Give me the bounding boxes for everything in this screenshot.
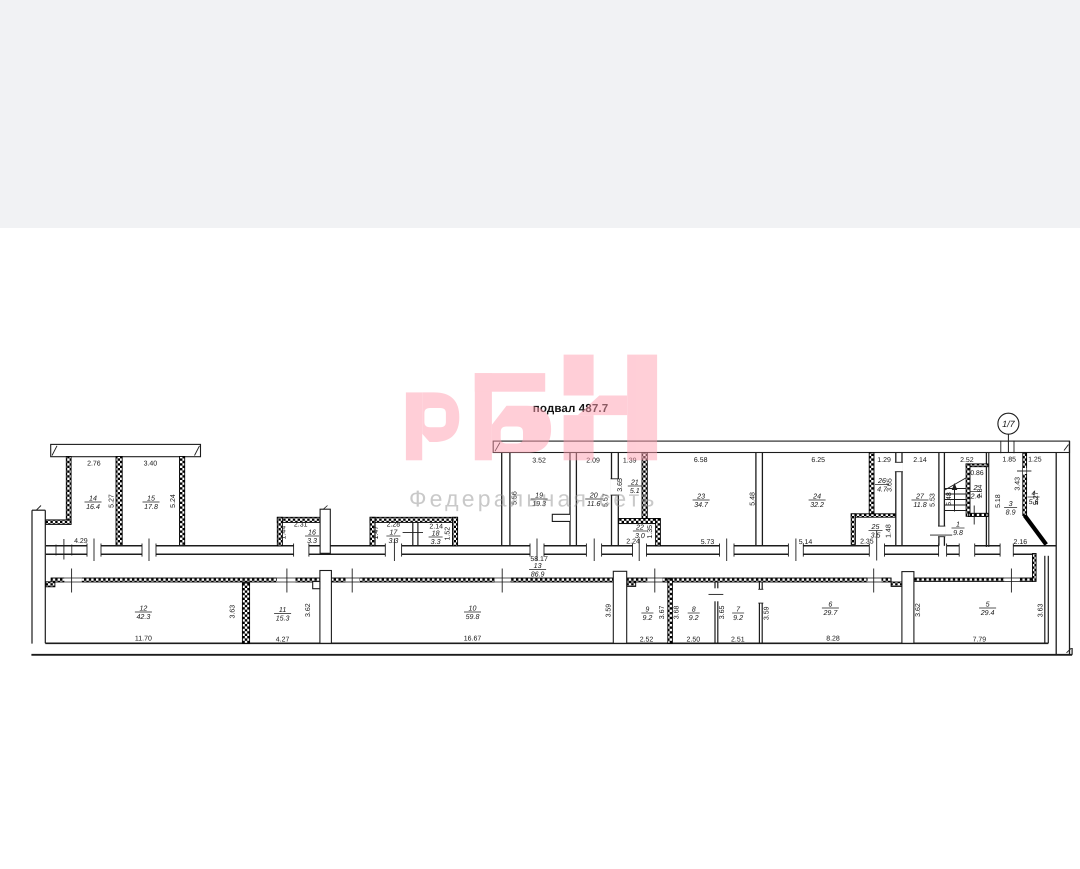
svg-text:29.4: 29.4	[980, 609, 995, 617]
svg-text:1.48: 1.48	[885, 524, 892, 538]
svg-text:5.14: 5.14	[799, 539, 813, 546]
svg-text:3.59: 3.59	[605, 604, 612, 618]
svg-text:6.25: 6.25	[811, 457, 825, 464]
svg-text:2.14: 2.14	[429, 524, 443, 531]
svg-text:16.4: 16.4	[86, 503, 100, 511]
svg-text:2.24: 2.24	[626, 539, 640, 546]
svg-text:3.62: 3.62	[915, 603, 922, 617]
svg-text:9.2: 9.2	[642, 614, 652, 622]
svg-text:3.65: 3.65	[719, 605, 726, 619]
svg-text:5.48: 5.48	[946, 492, 953, 506]
svg-text:5.48: 5.48	[749, 492, 756, 506]
svg-text:Федеральная сеть: Федеральная сеть	[409, 486, 658, 512]
svg-text:1.29: 1.29	[877, 457, 891, 464]
svg-text:3.3: 3.3	[307, 537, 317, 545]
svg-text:2.51: 2.51	[731, 636, 745, 643]
svg-text:16: 16	[308, 528, 316, 536]
svg-text:2.84: 2.84	[977, 484, 984, 497]
svg-text:11: 11	[279, 606, 286, 614]
svg-text:2.50: 2.50	[686, 636, 700, 643]
svg-text:17: 17	[389, 528, 398, 536]
svg-text:3.3: 3.3	[431, 538, 441, 546]
svg-text:29.7: 29.7	[822, 609, 838, 617]
svg-text:8.28: 8.28	[826, 636, 840, 643]
svg-text:26: 26	[877, 477, 886, 485]
svg-text:1: 1	[956, 520, 960, 528]
svg-text:5: 5	[986, 600, 990, 608]
svg-text:3.62: 3.62	[305, 603, 312, 617]
svg-text:3.65: 3.65	[887, 478, 894, 492]
svg-text:10: 10	[469, 604, 477, 612]
svg-text:3.43: 3.43	[1015, 477, 1022, 491]
svg-text:3: 3	[1009, 500, 1013, 508]
svg-text:3.68: 3.68	[674, 605, 681, 619]
svg-text:11.8: 11.8	[913, 501, 926, 509]
svg-text:18: 18	[432, 529, 440, 537]
svg-text:1.35: 1.35	[647, 525, 654, 539]
svg-text:17.8: 17.8	[144, 503, 158, 511]
svg-text:2.52: 2.52	[640, 636, 654, 643]
svg-text:3.3: 3.3	[388, 537, 398, 545]
svg-text:9.2: 9.2	[689, 614, 699, 622]
svg-text:5.53: 5.53	[929, 493, 936, 507]
svg-text:1.52: 1.52	[444, 527, 451, 541]
svg-text:5.27: 5.27	[109, 494, 116, 508]
svg-text:1/7: 1/7	[1002, 419, 1016, 429]
svg-text:3.67: 3.67	[659, 605, 666, 619]
svg-text:25: 25	[871, 523, 880, 531]
svg-text:3.52: 3.52	[532, 457, 546, 464]
svg-text:34.7: 34.7	[694, 501, 709, 509]
svg-text:0.86: 0.86	[970, 470, 983, 477]
svg-text:2.52: 2.52	[960, 457, 974, 464]
svg-text:5.24: 5.24	[170, 494, 177, 508]
svg-text:3.59: 3.59	[764, 606, 771, 620]
svg-text:6: 6	[828, 600, 832, 608]
svg-text:8.9: 8.9	[1006, 508, 1016, 516]
svg-text:27: 27	[915, 492, 925, 500]
svg-text:9.8: 9.8	[953, 529, 963, 537]
svg-text:16.67: 16.67	[464, 636, 482, 643]
svg-text:4.29: 4.29	[74, 538, 88, 545]
svg-text:9: 9	[645, 605, 649, 613]
svg-text:2.76: 2.76	[87, 461, 101, 468]
svg-text:15: 15	[147, 494, 155, 502]
svg-text:59.8: 59.8	[466, 613, 480, 621]
svg-text:23: 23	[696, 492, 705, 500]
svg-text:6.58: 6.58	[694, 457, 708, 464]
svg-text:2.35: 2.35	[860, 539, 874, 546]
svg-text:42.3: 42.3	[136, 613, 150, 621]
svg-text:14: 14	[89, 494, 97, 502]
svg-text:1.47: 1.47	[373, 526, 380, 540]
svg-text:11.70: 11.70	[135, 636, 152, 643]
svg-text:3.63: 3.63	[229, 605, 236, 619]
svg-text:32.2: 32.2	[810, 501, 824, 509]
svg-text:3.63: 3.63	[1037, 603, 1044, 617]
svg-text:22: 22	[635, 523, 644, 531]
svg-text:5.27: 5.27	[1033, 491, 1040, 505]
svg-text:2.28: 2.28	[387, 522, 401, 529]
svg-text:7.79: 7.79	[973, 637, 987, 644]
svg-text:24: 24	[812, 492, 821, 500]
svg-text:12: 12	[139, 604, 147, 612]
svg-text:3.40: 3.40	[144, 461, 158, 468]
svg-text:86.9: 86.9	[531, 570, 545, 578]
svg-text:1.44: 1.44	[281, 526, 288, 540]
svg-text:1.85: 1.85	[1002, 456, 1016, 463]
svg-text:8: 8	[692, 605, 696, 613]
svg-text:2.14: 2.14	[913, 457, 927, 464]
svg-text:9.2: 9.2	[733, 614, 743, 622]
svg-text:15.3: 15.3	[276, 614, 290, 622]
svg-text:2.16: 2.16	[1013, 539, 1027, 546]
svg-text:1.25: 1.25	[1028, 456, 1042, 463]
svg-text:2.31: 2.31	[294, 522, 308, 529]
svg-text:4.27: 4.27	[276, 637, 290, 644]
svg-text:13: 13	[534, 562, 542, 570]
svg-text:5.73: 5.73	[701, 539, 715, 546]
svg-text:5.18: 5.18	[995, 494, 1002, 508]
